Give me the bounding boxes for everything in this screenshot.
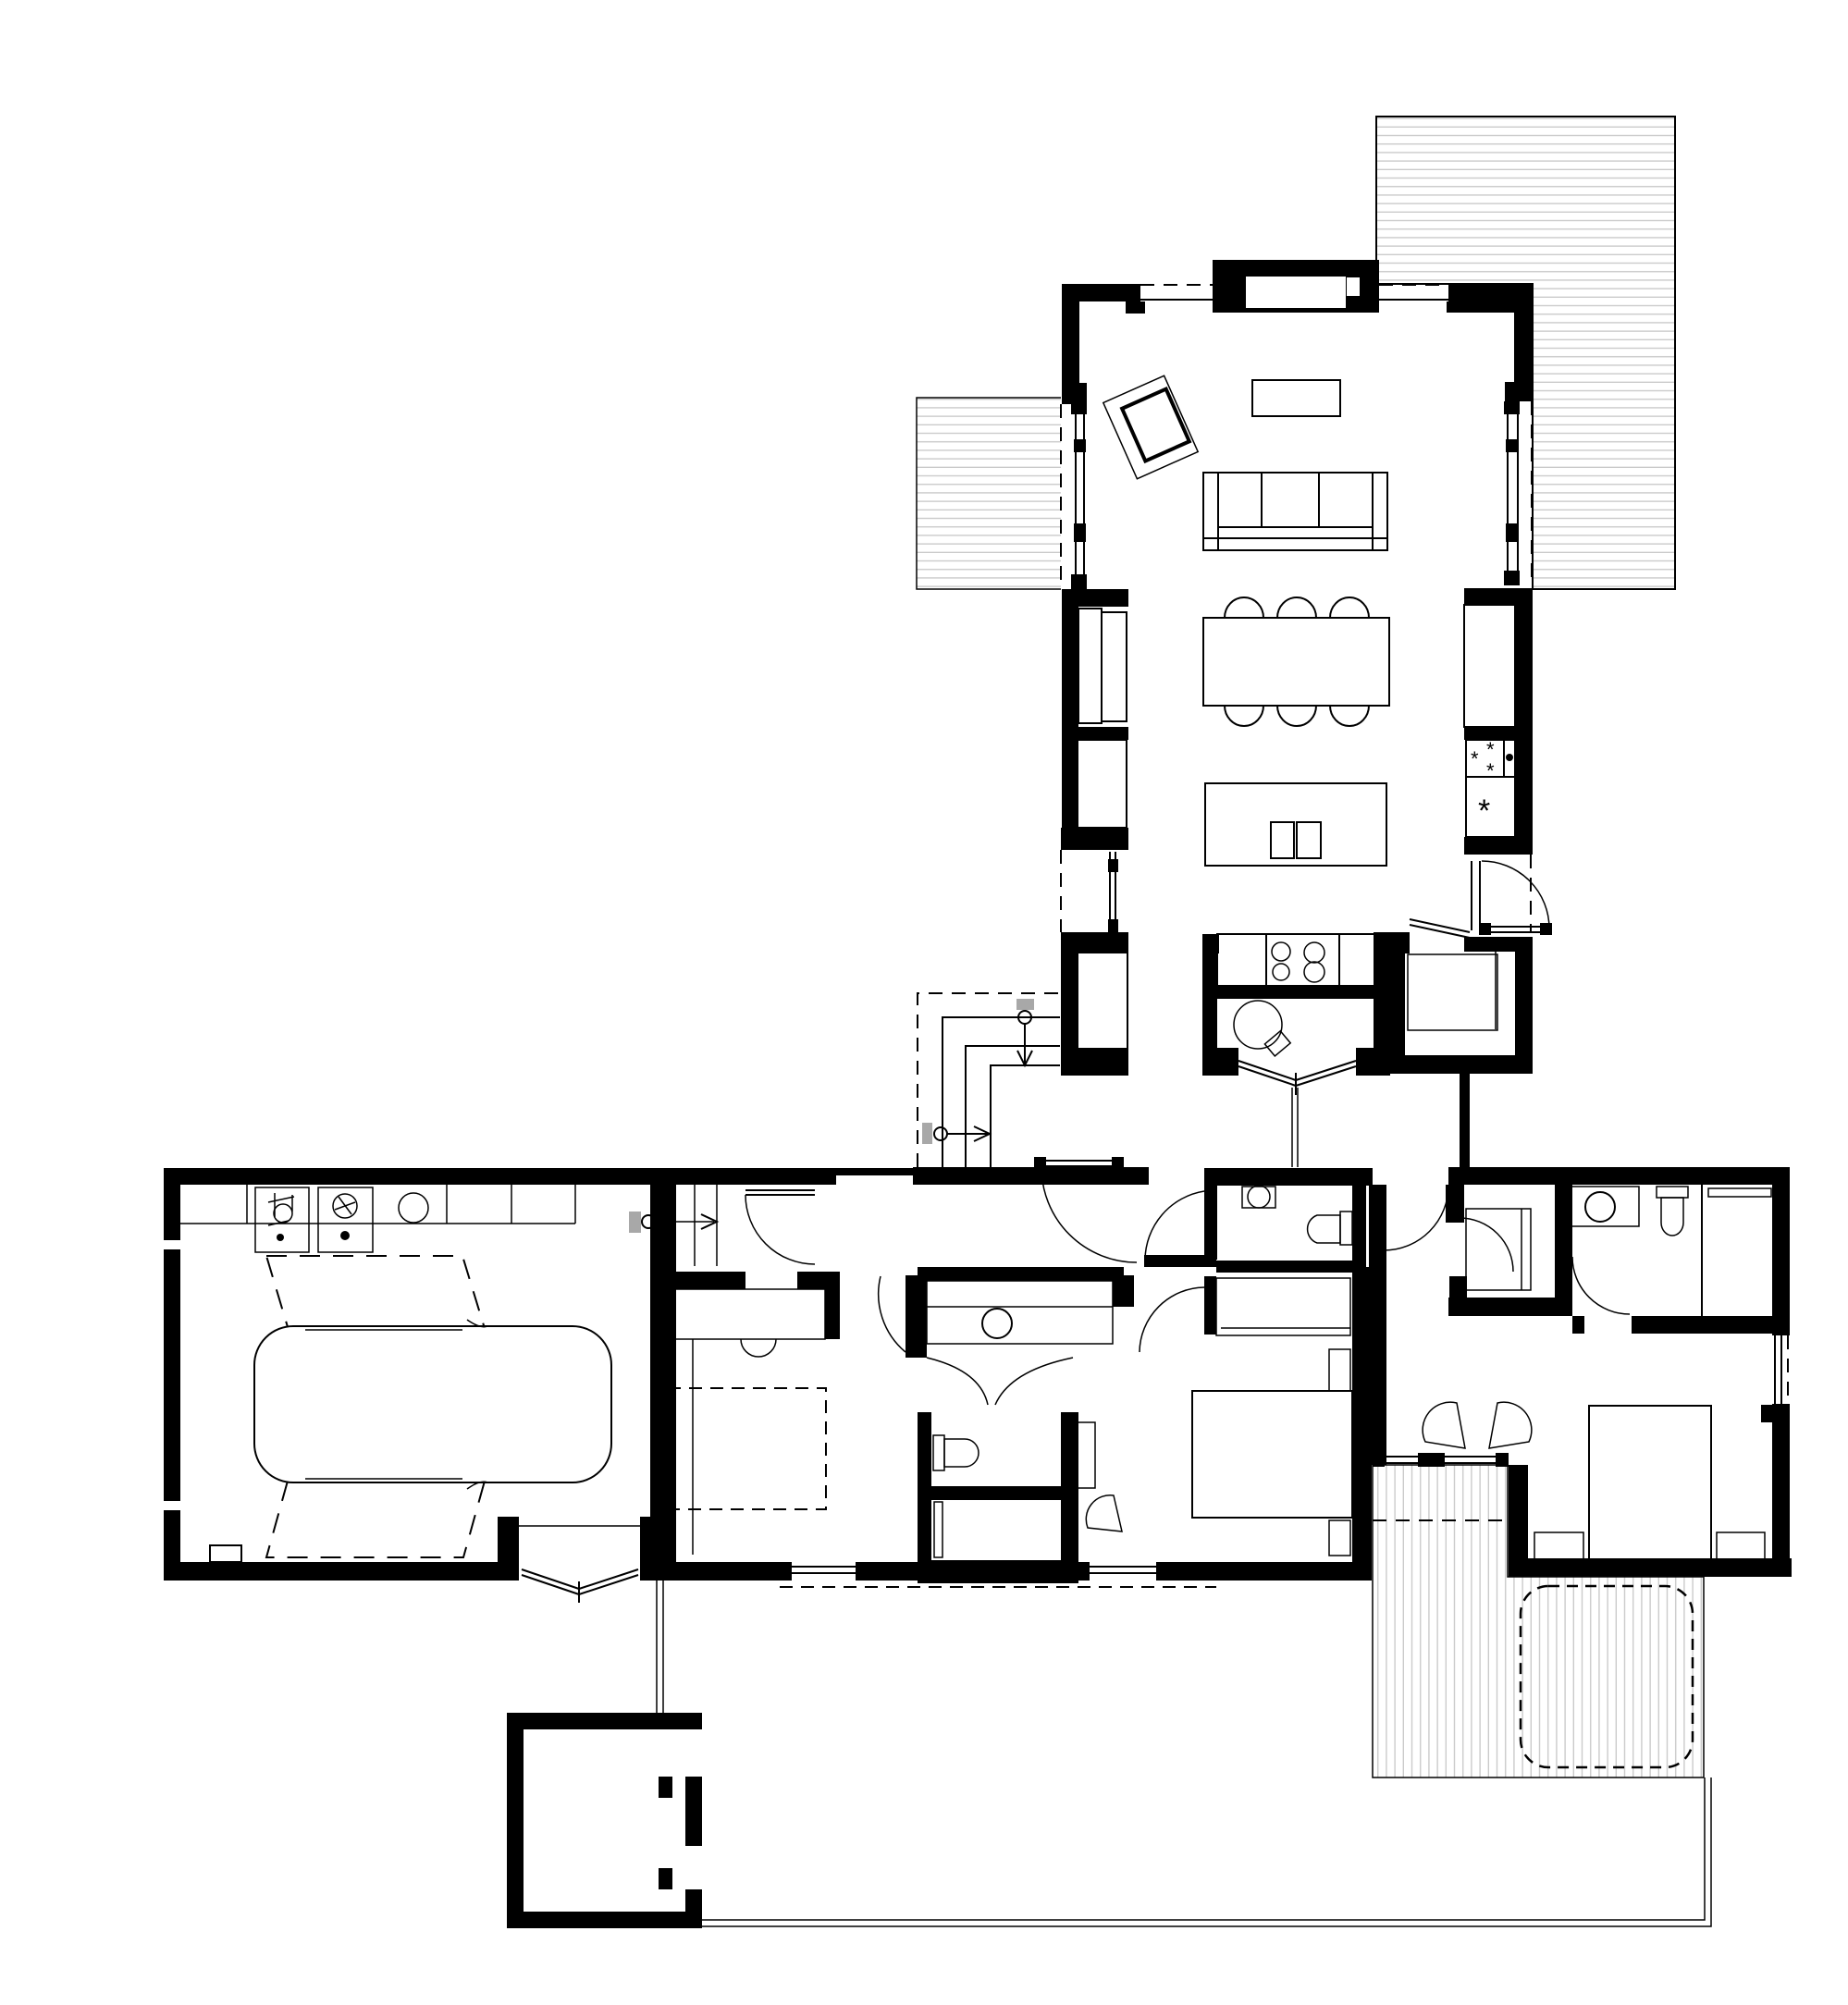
svg-text:*: * [1486, 759, 1495, 782]
svg-text:*: * [1471, 747, 1479, 770]
svg-text:*: * [1486, 738, 1495, 761]
svg-text:*: * [1478, 793, 1490, 829]
